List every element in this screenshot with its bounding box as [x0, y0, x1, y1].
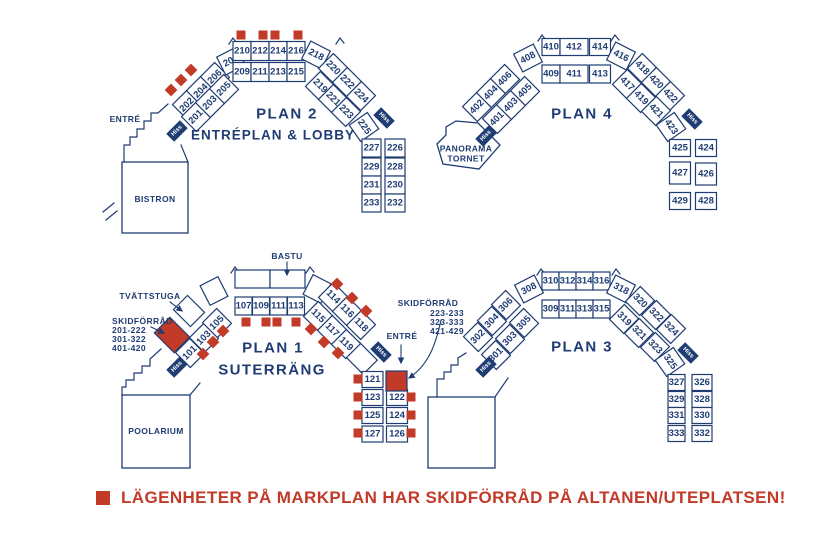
room-number: 127 [365, 429, 381, 440]
skidforrad-right-title: SKIDFÖRRÅD [398, 298, 459, 308]
room-number: 125 [365, 410, 382, 421]
room-number: 126 [389, 429, 405, 440]
skidforrad-marker [354, 429, 363, 438]
room-number: 332 [694, 428, 710, 439]
plan3-wall [495, 378, 508, 397]
room-number: 107 [236, 301, 252, 312]
room-number: 226 [387, 143, 403, 154]
room-number: 329 [669, 394, 685, 405]
legend-red-square [96, 491, 110, 505]
room-number: 331 [669, 410, 686, 421]
skidforrad-marker [185, 64, 198, 77]
room-number: 212 [252, 46, 268, 57]
room-number: 231 [364, 180, 381, 191]
room-number: 123 [365, 392, 381, 403]
room-number: 229 [364, 162, 380, 173]
room-number: 309 [543, 304, 559, 315]
room-number: 333 [669, 428, 685, 439]
skidforrad-marker [354, 411, 363, 420]
tvattstuga-label: TVÄTTSTUGA [119, 291, 180, 301]
skidforrad-marker [237, 31, 246, 40]
skidforrad-marker [292, 318, 301, 327]
room-number: 216 [288, 46, 304, 57]
skidforrad-marker [294, 31, 303, 40]
room-number: 429 [672, 196, 688, 207]
skidforrad-marker [262, 318, 271, 327]
legend-text: LÄGENHETER PÅ MARKPLAN HAR SKIDFÖRRÅD PÅ… [121, 488, 786, 508]
plan3-title: PLAN 3 [551, 339, 613, 356]
room-number: 414 [592, 42, 609, 53]
plan3-facility-box [428, 397, 495, 468]
room-number: 213 [270, 67, 286, 78]
room-number: 409 [543, 69, 559, 80]
room-number: 109 [253, 301, 269, 312]
skidforrad-left-range-3: 401-420 [112, 343, 146, 353]
skidforrad-marker [354, 393, 363, 402]
room-number: 215 [288, 67, 305, 78]
room-number: 121 [365, 374, 382, 385]
room-number: 412 [566, 42, 582, 53]
room-number: 113 [288, 301, 303, 312]
room-number: 232 [387, 198, 403, 209]
room-unlabeled [200, 277, 228, 306]
bastu-label: BASTU [271, 251, 302, 261]
entre-label-plan1: ENTRÉ [387, 331, 418, 341]
room-number: 233 [364, 198, 380, 209]
skidforrad-marker [242, 318, 251, 327]
plan2-wall [336, 38, 344, 44]
plan2-wall [181, 145, 188, 162]
room-number: 326 [694, 377, 710, 388]
plan1-wall [190, 383, 200, 395]
room-number: 211 [252, 67, 268, 78]
room-number: 413 [592, 69, 608, 80]
room-number: 328 [694, 394, 710, 405]
plan1-wall [306, 267, 314, 273]
room-number: 210 [234, 46, 250, 57]
room-number: 316 [594, 276, 610, 287]
skidforrad-marker [407, 411, 416, 420]
room-unlabeled [235, 270, 270, 288]
room-number: 313 [577, 304, 593, 315]
skidforrad-marker [407, 429, 416, 438]
plan2-subtitle: ENTRÉPLAN & LOBBY [191, 128, 355, 143]
floorplan-svg: 2022042062012032052082102122142162092112… [0, 0, 833, 555]
room-number: 124 [389, 410, 406, 421]
room-number: 227 [364, 143, 380, 154]
skidforrad-marker [271, 31, 280, 40]
room-number: 312 [560, 276, 576, 287]
plan3-wall [437, 353, 466, 397]
legend: LÄGENHETER PÅ MARKPLAN HAR SKIDFÖRRÅD PÅ… [96, 488, 786, 508]
room-number: 230 [387, 180, 403, 191]
skidforrad-marker [407, 393, 416, 402]
room-number: 428 [698, 196, 714, 207]
room-number: 327 [669, 377, 685, 388]
room-number: 411 [566, 69, 582, 80]
room-number: 228 [387, 162, 403, 173]
skidforrad-marker [165, 84, 178, 97]
room-number: 427 [672, 168, 688, 179]
room-number: 314 [577, 276, 594, 287]
skidforrad-marker [273, 318, 282, 327]
plan2-wall [103, 203, 114, 212]
floorplan-page: 2022042062012032052082102122142162092112… [0, 0, 833, 555]
plan1-title: PLAN 1 [242, 340, 304, 357]
room-number: 122 [389, 392, 405, 403]
room-number: 214 [270, 46, 287, 57]
skidforrad-marker [175, 74, 188, 87]
plan4-wall [611, 35, 619, 41]
bistron-label: BISTRON [134, 194, 175, 204]
plan2-wall [124, 104, 168, 162]
skidforrad-marker [259, 31, 268, 40]
room-number: 410 [543, 42, 559, 53]
plan1-subtitle: SUTERRÄNG [218, 362, 326, 379]
room-number: 315 [594, 304, 611, 315]
room-number: 111 [271, 301, 287, 312]
plan1-wall [122, 349, 161, 395]
room-number: 330 [694, 410, 710, 421]
room-number: 209 [234, 67, 250, 78]
plan4-title: PLAN 4 [551, 106, 613, 123]
room-number: 310 [543, 276, 559, 287]
plan2-wall [106, 211, 117, 220]
plan3-wall [612, 269, 620, 275]
entre-label-plan2: ENTRÉ [110, 114, 141, 124]
skidforrad-right-range-3: 421-429 [430, 326, 464, 336]
room-number: 426 [698, 169, 714, 180]
skidforrad-room [386, 371, 407, 391]
poolarium-label: POOLARIUM [128, 426, 184, 436]
room-number: 311 [560, 304, 576, 315]
panorama-tornet-label: PANORAMA TORNET [440, 145, 493, 164]
plan2-title: PLAN 2 [256, 106, 318, 123]
room-number: 425 [672, 143, 689, 154]
skidforrad-marker [354, 375, 363, 384]
room-number: 424 [698, 143, 715, 154]
